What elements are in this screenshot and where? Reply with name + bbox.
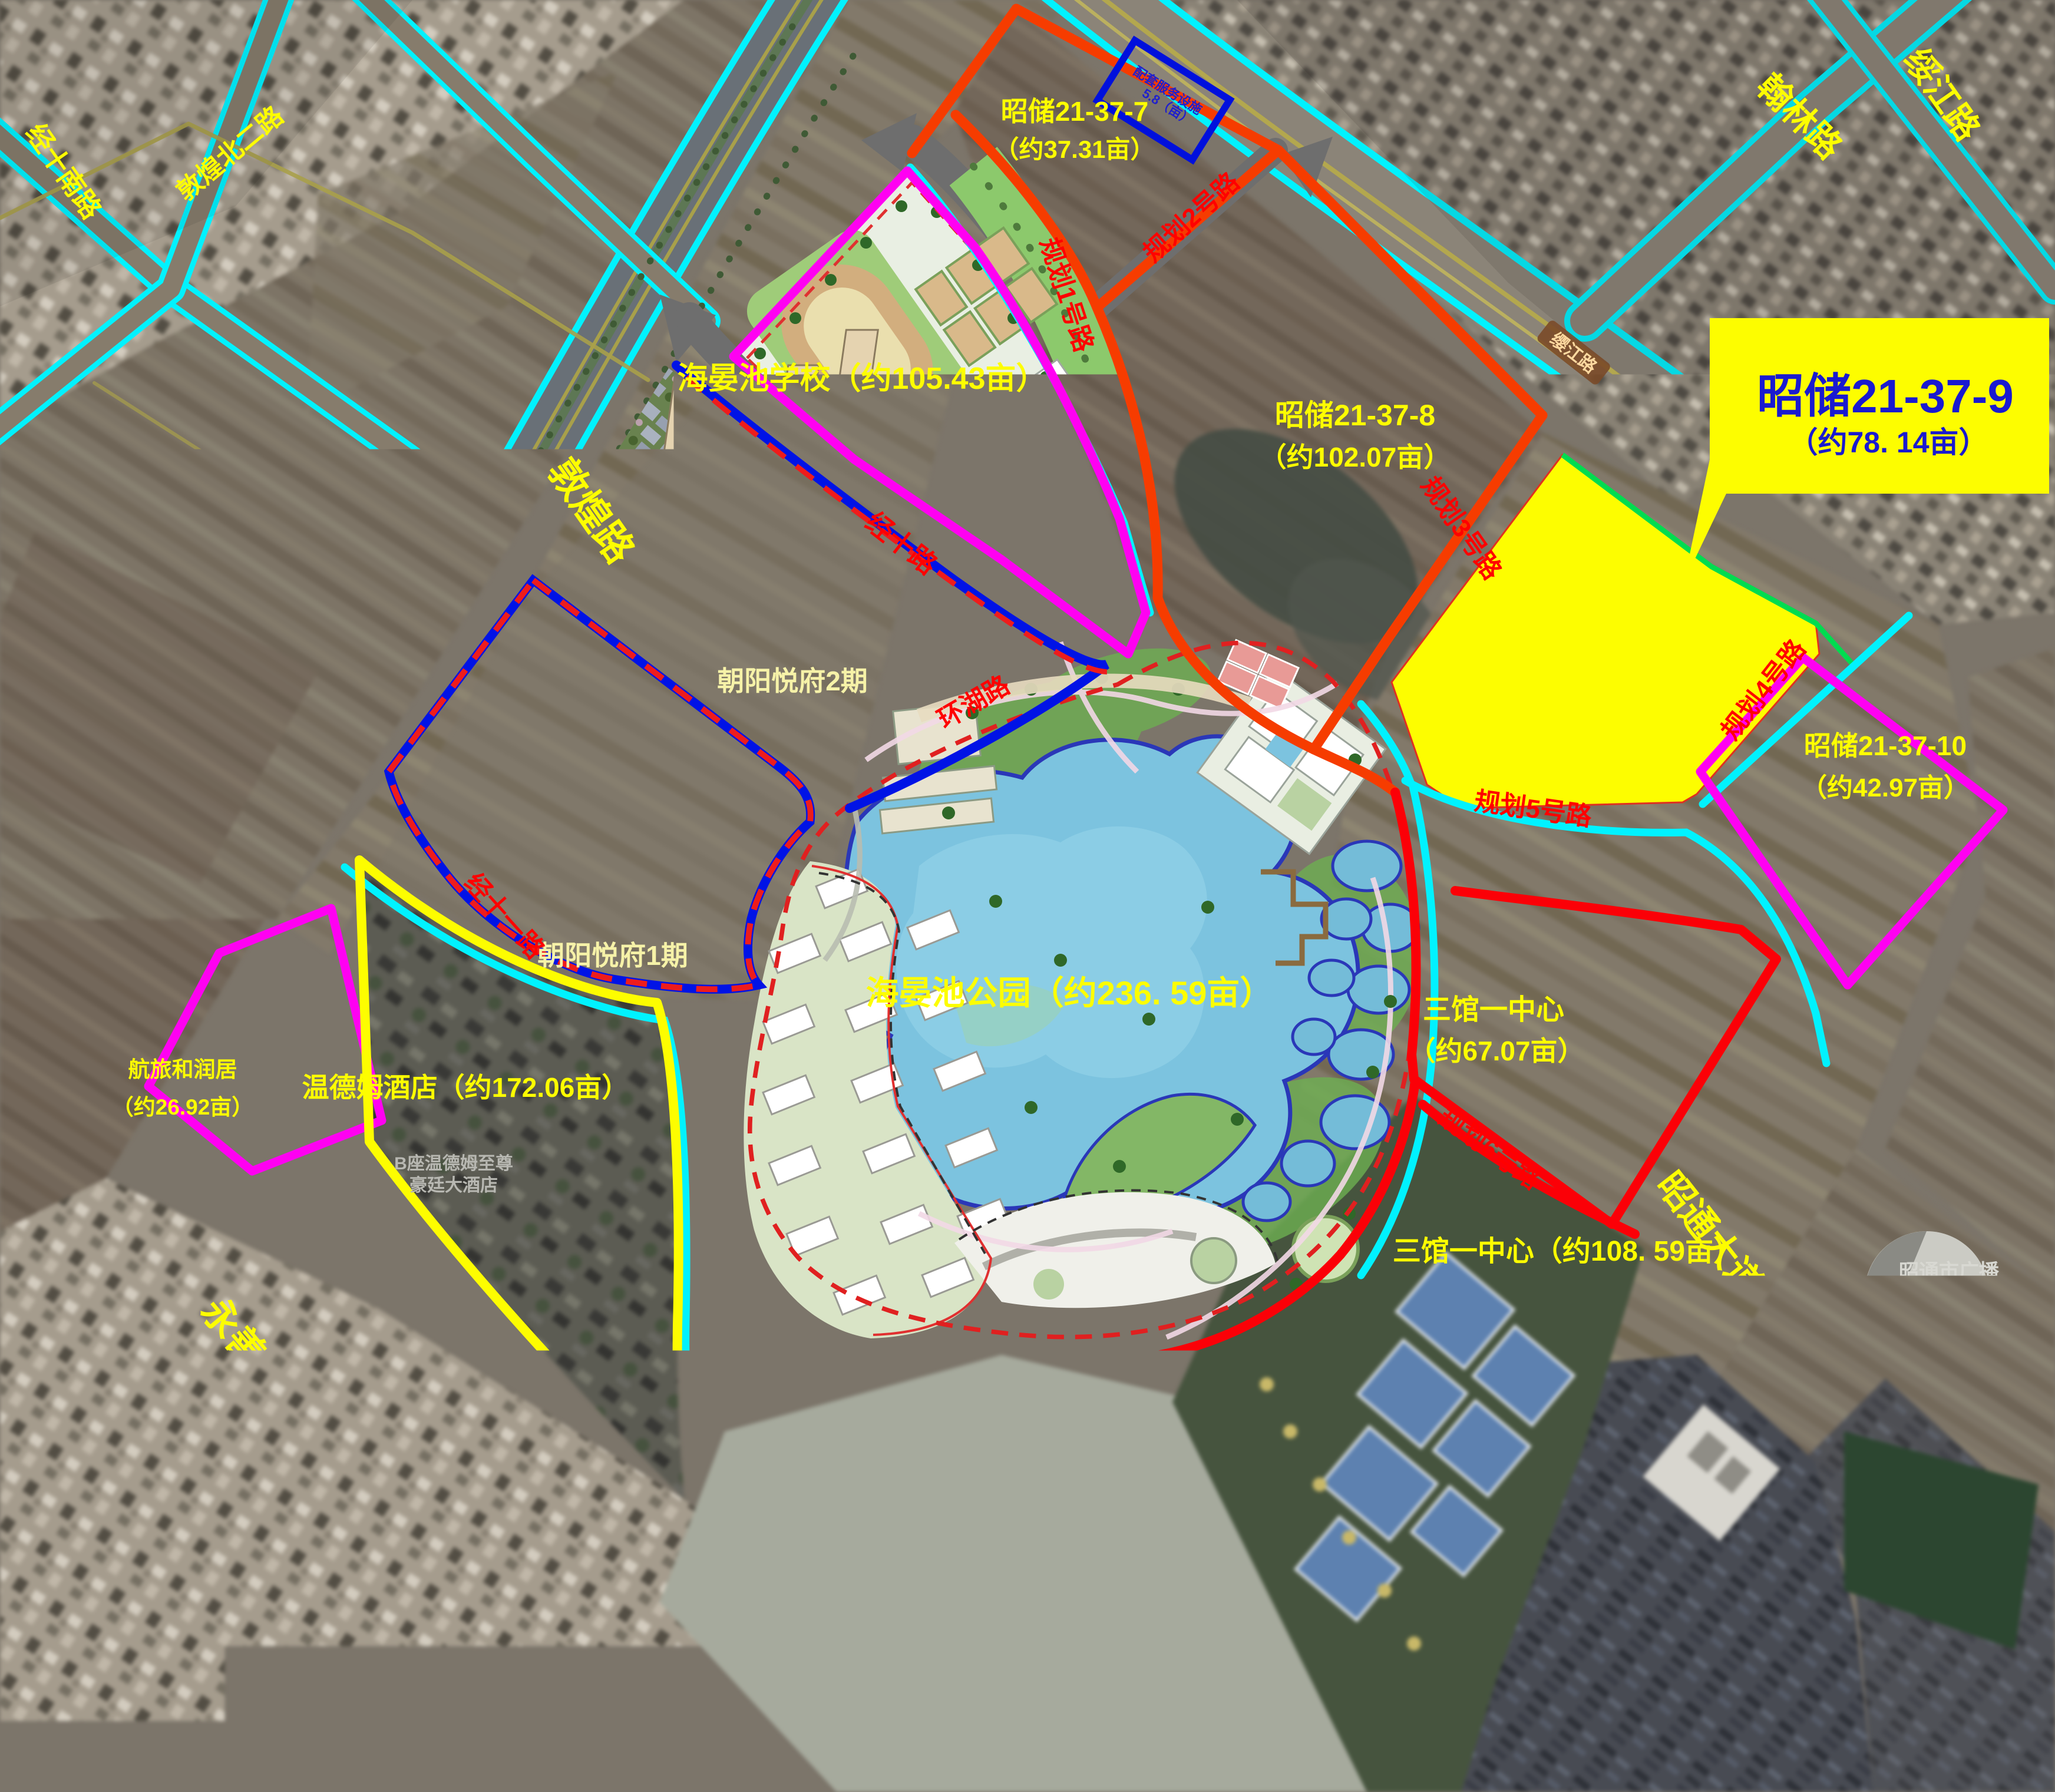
- svg-text:（约67.07亩）: （约67.07亩）: [1408, 1036, 1584, 1066]
- svg-text:昭储21-37-8: 昭储21-37-8: [1275, 399, 1435, 432]
- svg-text:朝阳悦府2期: 朝阳悦府2期: [717, 666, 868, 696]
- svg-text:海晏池公园（约236. 59亩）: 海晏池公园（约236. 59亩）: [866, 974, 1273, 1011]
- svg-text:航旅和润居: 航旅和润居: [128, 1057, 237, 1082]
- svg-text:昭储21-37-7: 昭储21-37-7: [1001, 96, 1149, 127]
- svg-text:（约26.92亩）: （约26.92亩）: [112, 1095, 254, 1119]
- svg-text:昭通市广播: 昭通市广播: [1899, 1260, 2000, 1283]
- svg-text:海晏池学校（约105.43亩）: 海晏池学校（约105.43亩）: [677, 362, 1046, 396]
- svg-text:豪廷大酒店: 豪廷大酒店: [409, 1175, 498, 1195]
- svg-text:（约42.97亩）: （约42.97亩）: [1801, 773, 1970, 802]
- svg-text:三馆一中心: 三馆一中心: [1423, 994, 1564, 1026]
- svg-text:温德姆酒店（约172.06亩）: 温德姆酒店（约172.06亩）: [302, 1072, 629, 1103]
- svg-text:B座温德姆至尊: B座温德姆至尊: [394, 1153, 513, 1173]
- svg-text:昭储21-37-10: 昭储21-37-10: [1804, 730, 1967, 761]
- svg-text:云南建投昭通发展大厦: 云南建投昭通发展大厦: [1600, 1512, 1906, 1546]
- svg-text:电视局: 电视局: [1919, 1285, 1979, 1308]
- svg-text:会展中心（约201.94亩）: 会展中心（约201.94亩）: [804, 1561, 1117, 1592]
- svg-text:昭储21-37-9: 昭储21-37-9: [1757, 370, 2014, 422]
- svg-text:（约37.31亩）: （约37.31亩）: [994, 135, 1155, 163]
- svg-text:（约102.07亩）: （约102.07亩）: [1260, 442, 1451, 472]
- svg-text:（约78. 14亩）: （约78. 14亩）: [1788, 426, 1988, 459]
- svg-text:礼仪广场: 礼仪广场: [954, 1753, 1049, 1778]
- svg-text:朝阳悦府1期: 朝阳悦府1期: [537, 940, 688, 971]
